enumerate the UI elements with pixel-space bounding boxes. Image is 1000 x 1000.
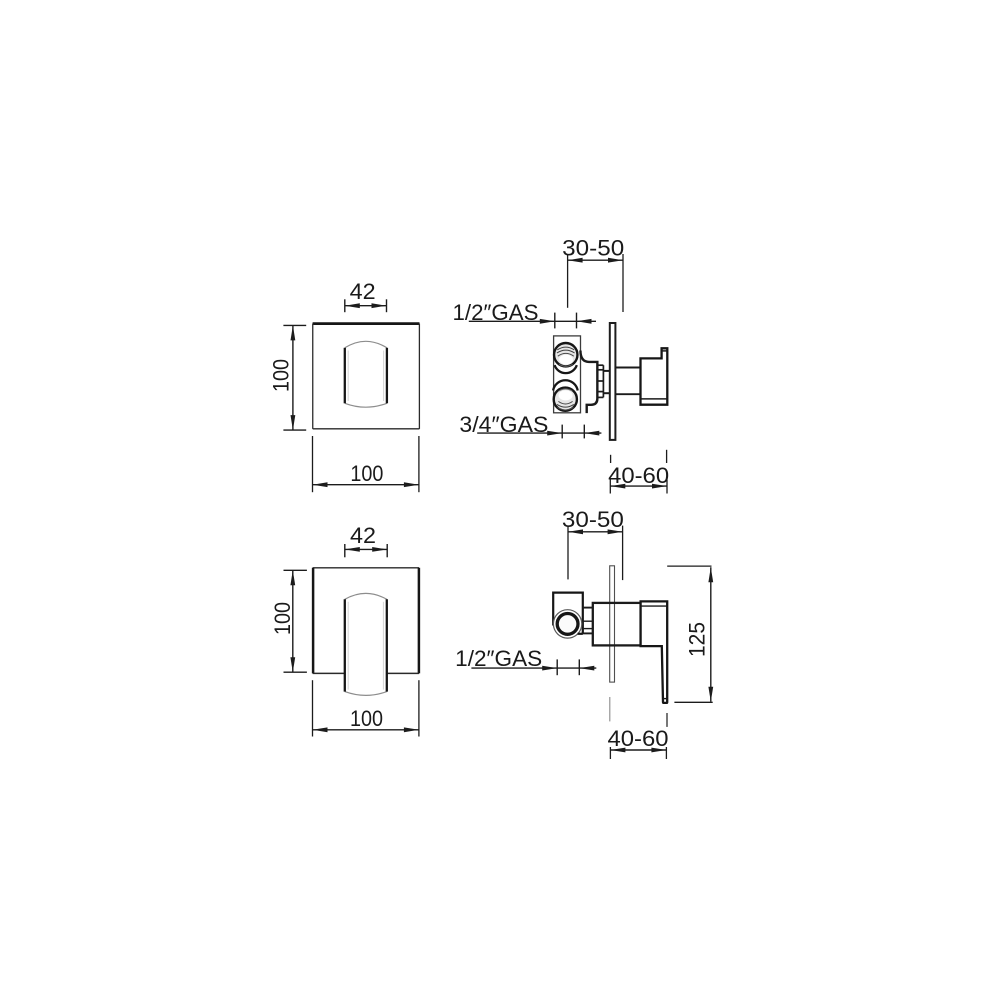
svg-text:42: 42 <box>350 279 376 304</box>
svg-text:100: 100 <box>270 602 295 635</box>
svg-text:40-60: 40-60 <box>608 463 669 488</box>
svg-text:30-50: 30-50 <box>562 507 624 532</box>
svg-text:100: 100 <box>350 461 383 486</box>
svg-text:42: 42 <box>350 523 376 548</box>
svg-text:125: 125 <box>685 622 710 657</box>
svg-text:100: 100 <box>269 359 294 392</box>
svg-text:30-50: 30-50 <box>562 235 624 260</box>
svg-text:40-60: 40-60 <box>608 726 669 751</box>
svg-text:100: 100 <box>350 706 383 731</box>
